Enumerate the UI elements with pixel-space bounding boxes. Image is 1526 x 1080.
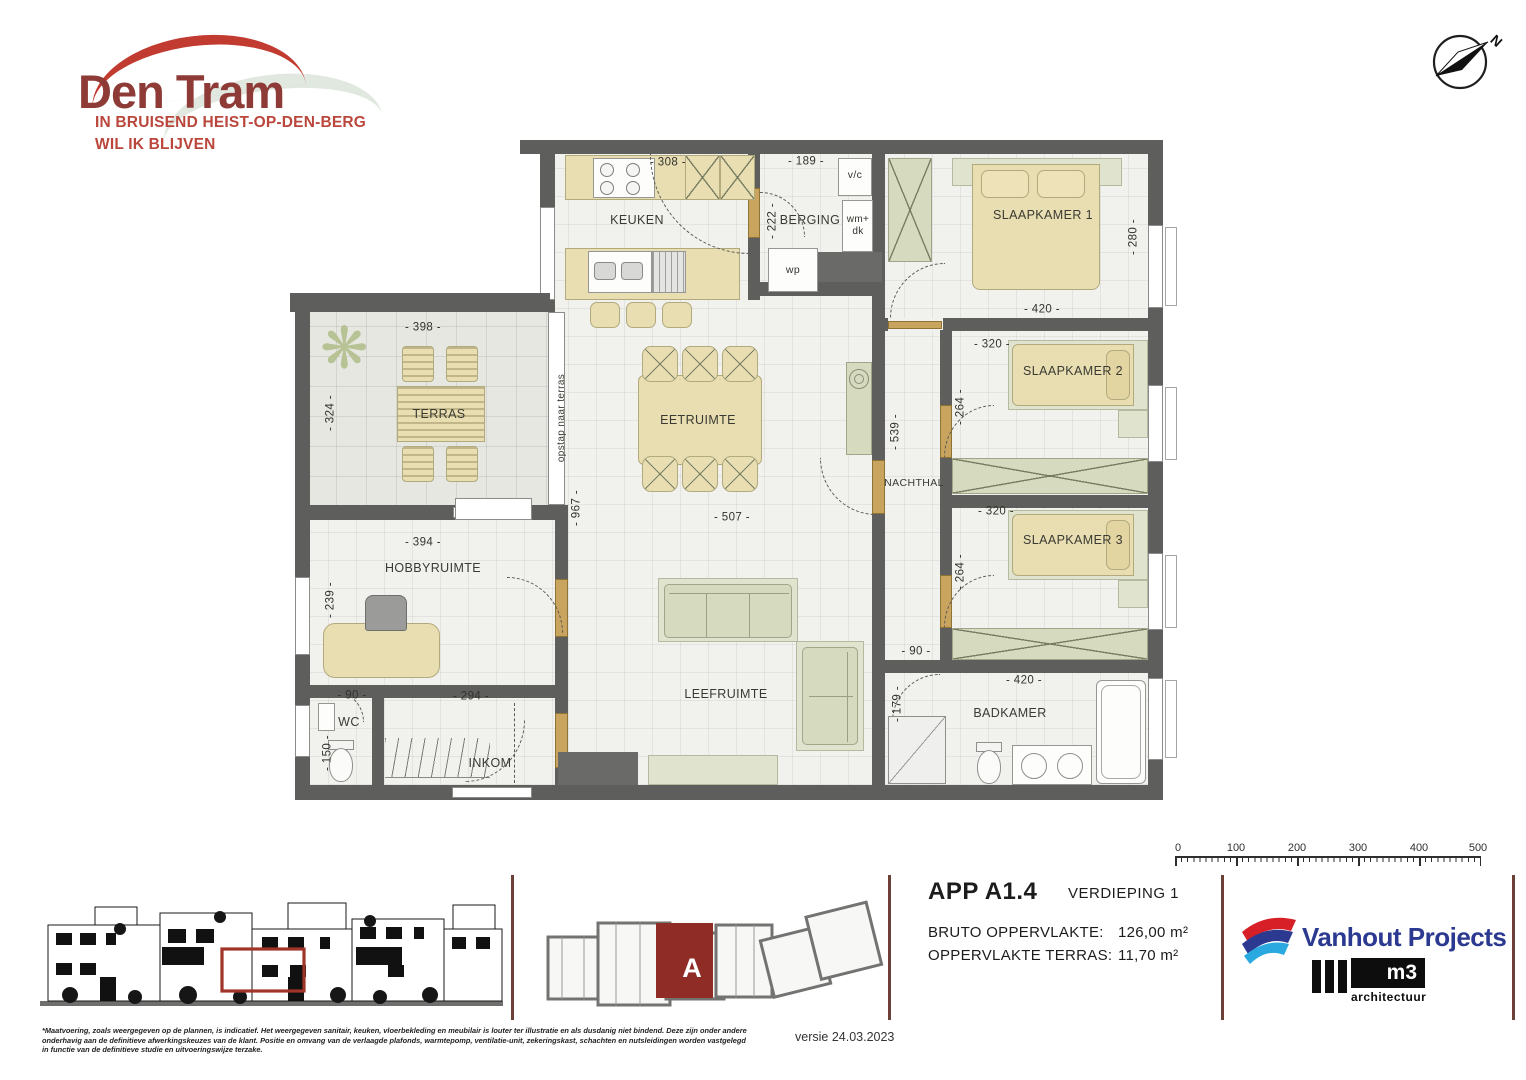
label-vc: v/c — [848, 170, 863, 181]
door — [888, 321, 942, 329]
compass-north-label: N — [1487, 31, 1505, 50]
desk-chair — [365, 595, 407, 631]
site-key-plan: A — [540, 885, 885, 1015]
dim-terras-height: - 324 - — [325, 395, 337, 431]
vanhout-logo-icon — [1238, 910, 1300, 968]
dim-inkom-width: - 294 - — [453, 691, 489, 703]
scale-tick-label: 400 — [1410, 842, 1428, 854]
window — [1148, 225, 1163, 308]
room-label-inkom: INKOM — [469, 757, 512, 770]
gross-area-label: BRUTO OPPERVLAKTE: — [928, 924, 1104, 941]
kitchen-sink — [588, 251, 652, 293]
wall — [940, 495, 1163, 508]
room-label-slaapkamer1: SLAAPKAMER 1 — [993, 209, 1093, 222]
m3-logo-bar — [1325, 960, 1334, 993]
stove — [593, 158, 655, 198]
developer-name: Vanhout Projects — [1302, 922, 1506, 953]
logo-tagline-2: WIL IK BLIJVEN — [95, 136, 216, 154]
apartment-code: APP A1.4 — [928, 878, 1037, 906]
version-label: versie 24.03.2023 — [795, 1030, 894, 1044]
window — [1148, 678, 1163, 760]
toilet — [976, 742, 1002, 786]
room-label-hobbyruimte: HOBBYRUIMTE — [385, 562, 481, 575]
dim-keuken-width: - 308 - — [650, 157, 686, 169]
dim-berging-height: - 222 - — [767, 203, 779, 239]
room-label-nachthal: NACHTHAL — [884, 478, 944, 489]
compass-icon: N — [1426, 24, 1512, 104]
dining-chair — [722, 346, 758, 382]
dim-nachthal-height: - 539 - — [890, 414, 902, 450]
window-outer-frame — [1165, 680, 1177, 758]
dim-sk1-height: - 280 - — [1128, 219, 1140, 255]
wardrobe — [952, 628, 1148, 660]
wall — [295, 785, 1163, 800]
room-label-terras: TERRAS — [412, 408, 465, 421]
terrace-chair — [446, 446, 478, 482]
dim-eetruimte-height: - 967 - — [571, 490, 583, 526]
section-divider — [888, 875, 891, 1020]
dim-sk3-height: - 264 - — [955, 554, 967, 590]
window — [452, 787, 532, 798]
terrace-chair — [402, 346, 434, 382]
room-label-wc: WC — [338, 716, 360, 729]
dining-chair — [642, 346, 678, 382]
wardrobe — [952, 458, 1148, 494]
dim-sk2-width: - 320 - — [974, 339, 1010, 351]
label-wm: wm+ — [847, 215, 870, 225]
storage-block — [808, 252, 882, 282]
scale-tick-label: 0 — [1175, 842, 1181, 854]
window — [295, 705, 310, 757]
tv-cabinet — [648, 755, 778, 785]
brochure-page: Den Tram IN BRUISEND HEIST-OP-DEN-BERG W… — [0, 0, 1526, 1080]
dim-eetruimte-width: - 507 - — [714, 512, 750, 524]
wall — [290, 293, 550, 312]
kitchen-drainer — [652, 251, 686, 293]
wardrobe — [888, 158, 932, 262]
terrace-note: opstap naar terras — [557, 374, 567, 462]
terrace-area-label: OPPERVLAKTE TERRAS: — [928, 947, 1112, 964]
section-divider — [1221, 875, 1224, 1020]
technical-unit — [846, 362, 872, 455]
architect-logo: m3 — [1351, 958, 1425, 988]
window — [1148, 553, 1163, 630]
m3-logo-bar — [1312, 960, 1321, 993]
room-label-badkamer: BADKAMER — [973, 707, 1046, 720]
dining-chair — [682, 456, 718, 492]
tv-wall-block — [558, 752, 638, 785]
m3-logo-bar — [1338, 960, 1347, 993]
dim-badkamer-height: - 179 - — [892, 686, 904, 722]
dining-chair — [682, 346, 718, 382]
window — [295, 577, 310, 655]
building-elevation — [40, 885, 505, 1017]
door-dash-line — [514, 703, 515, 783]
dim-hobby-height: - 239 - — [325, 582, 337, 618]
wall — [885, 660, 1163, 673]
section-divider — [511, 875, 514, 1020]
room-label-slaapkamer3: SLAAPKAMER 3 — [1023, 534, 1123, 547]
dim-sk3-width: - 320 - — [978, 506, 1014, 518]
armchair — [802, 647, 858, 745]
sofa — [664, 584, 792, 638]
room-label-leefruimte: LEEFRUIMTE — [684, 688, 767, 701]
shower — [888, 716, 946, 784]
window-outer-frame — [1165, 387, 1177, 460]
wall — [872, 140, 885, 330]
disclaimer-text: *Maatvoering, zoals weergegeven op de pl… — [42, 1026, 754, 1055]
dim-wc-width: - 90 - — [337, 690, 366, 702]
nightstand — [1118, 580, 1148, 608]
window — [540, 207, 555, 300]
label-dk: dk — [852, 227, 863, 237]
label-wp: wp — [786, 265, 800, 276]
scale-tick-label: 200 — [1288, 842, 1306, 854]
dim-terras-width: - 398 - — [405, 322, 441, 334]
desk — [323, 623, 440, 678]
gross-area-value: 126,00 m² — [1118, 924, 1188, 941]
scale-bar: 0 100 200 300 400 500 — [1175, 842, 1481, 870]
bar-chair — [626, 302, 656, 328]
window — [1148, 385, 1163, 462]
wall — [520, 140, 1163, 154]
double-bed — [972, 164, 1100, 290]
dim-badkamer-width: - 420 - — [1006, 675, 1042, 687]
site-plan-unit-a-label: A — [682, 953, 702, 983]
dim-hobby-width: - 394 - — [405, 537, 441, 549]
room-label-keuken: KEUKEN — [610, 214, 664, 227]
wall — [872, 672, 885, 785]
terrace-area-value: 11,70 m² — [1118, 947, 1178, 964]
room-label-berging: BERGING — [780, 214, 840, 227]
window-outer-frame — [1165, 555, 1177, 628]
logo-title: Den Tram — [78, 64, 284, 119]
vanity-double-sink — [1012, 745, 1092, 785]
window-outer-frame — [1165, 227, 1177, 306]
bar-chair — [590, 302, 620, 328]
scale-tick-label: 300 — [1349, 842, 1367, 854]
room-label-slaapkamer2: SLAAPKAMER 2 — [1023, 365, 1123, 378]
bathtub — [1096, 680, 1146, 784]
dining-chair — [722, 456, 758, 492]
floor-plan: ❋ — [290, 128, 1190, 804]
dining-chair — [642, 456, 678, 492]
dim-sk2-height: - 264 - — [955, 389, 967, 425]
plant: ❋ — [320, 320, 369, 378]
nightstand — [1118, 410, 1148, 438]
scale-tick-label: 500 — [1469, 842, 1487, 854]
dim-berging-width: - 189 - — [788, 156, 824, 168]
dim-sk1-width: - 420 - — [1024, 304, 1060, 316]
dim-nachthal-width: - 90 - — [901, 646, 930, 658]
terrace-chair — [402, 446, 434, 482]
room-label-eetruimte: EETRUIMTE — [660, 414, 736, 427]
architect-sub-label: architectuur — [1351, 990, 1426, 1004]
dim-wc-height: - 150 - — [322, 735, 334, 771]
branding-block: Vanhout Projects m3 architectuur — [1238, 898, 1508, 1018]
bar-chair — [662, 302, 692, 328]
apartment-floor: VERDIEPING 1 — [1068, 885, 1179, 902]
scale-tick-label: 100 — [1227, 842, 1245, 854]
section-divider — [1512, 875, 1515, 1020]
wall — [372, 698, 384, 793]
terrace-step — [455, 498, 532, 520]
terrace-chair — [446, 346, 478, 382]
